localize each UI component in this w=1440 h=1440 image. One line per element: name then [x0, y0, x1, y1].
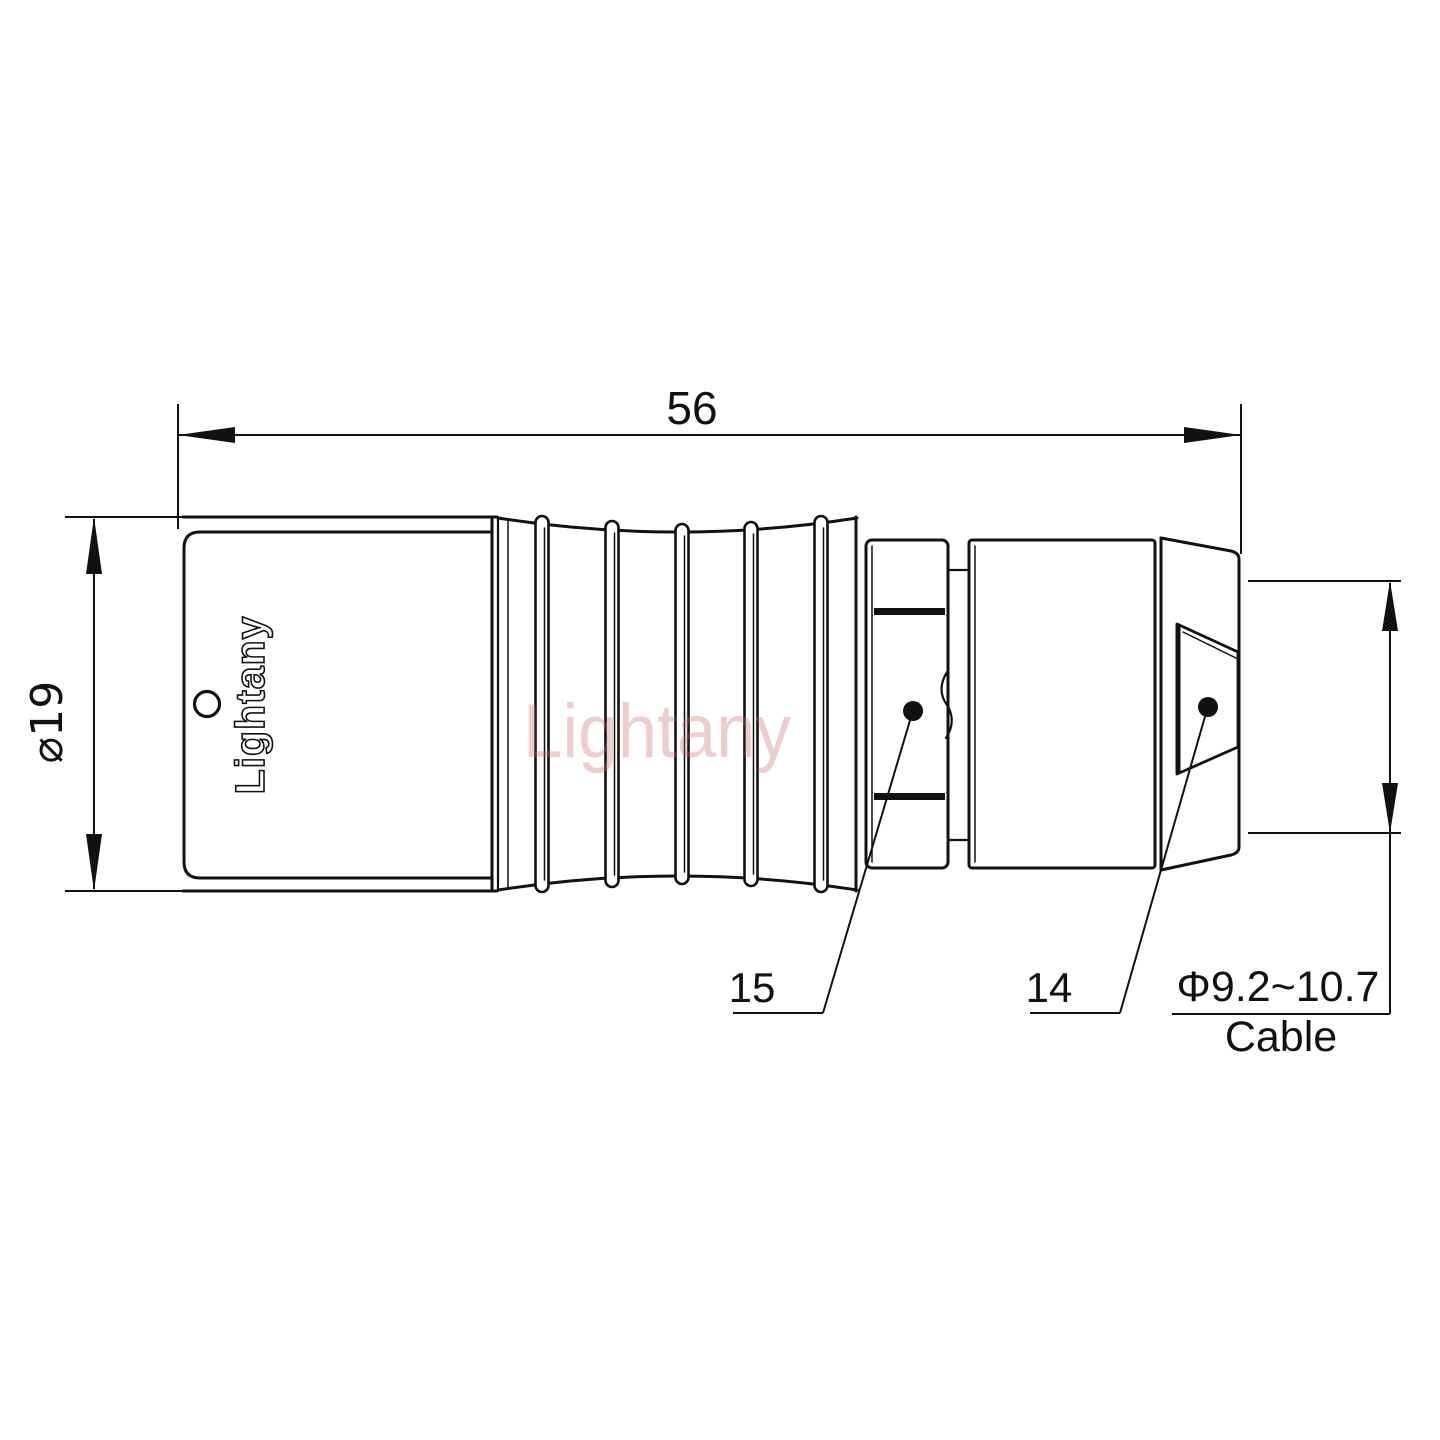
- collet-recess-top-border: [874, 608, 945, 615]
- body-logo: Lightany: [227, 616, 273, 795]
- cable-label: Cable: [1225, 1013, 1337, 1061]
- diameter-arrow-top: [86, 517, 102, 574]
- length-arrow-left: [178, 427, 235, 443]
- connector-body: Lightany: [183, 517, 498, 891]
- boot-rib-5: [815, 516, 828, 892]
- connector-technical-drawing: Lightany Lightany: [0, 0, 1440, 1440]
- label-14-leader-dot: [1198, 697, 1218, 717]
- overall-length-value: 56: [666, 382, 717, 434]
- nut-body: [969, 540, 1155, 868]
- cable-arrow-top: [1382, 581, 1398, 631]
- neck-lines: [948, 570, 969, 840]
- length-arrow-right: [1184, 427, 1241, 443]
- body-diameter-dimension: ⌀19: [22, 517, 183, 891]
- body-vent-hole: [195, 692, 220, 717]
- watermark: Lightany: [523, 689, 791, 774]
- boot-part-number: 15: [729, 964, 776, 1011]
- drawing-canvas: Lightany Lightany: [0, 0, 1440, 1440]
- collet-recess-bottom-border: [874, 793, 945, 800]
- label-15-leader-dot: [903, 701, 923, 721]
- nut-part-number: 14: [1026, 964, 1073, 1011]
- cable-diameter-value: Φ9.2~10.7: [1177, 963, 1380, 1011]
- overall-length-dimension: 56: [178, 382, 1241, 554]
- coupling-nut: [969, 540, 1155, 868]
- body-diameter-value: ⌀19: [22, 681, 73, 763]
- diameter-arrow-bottom: [86, 834, 102, 891]
- cable-arrow-bottom: [1382, 783, 1398, 833]
